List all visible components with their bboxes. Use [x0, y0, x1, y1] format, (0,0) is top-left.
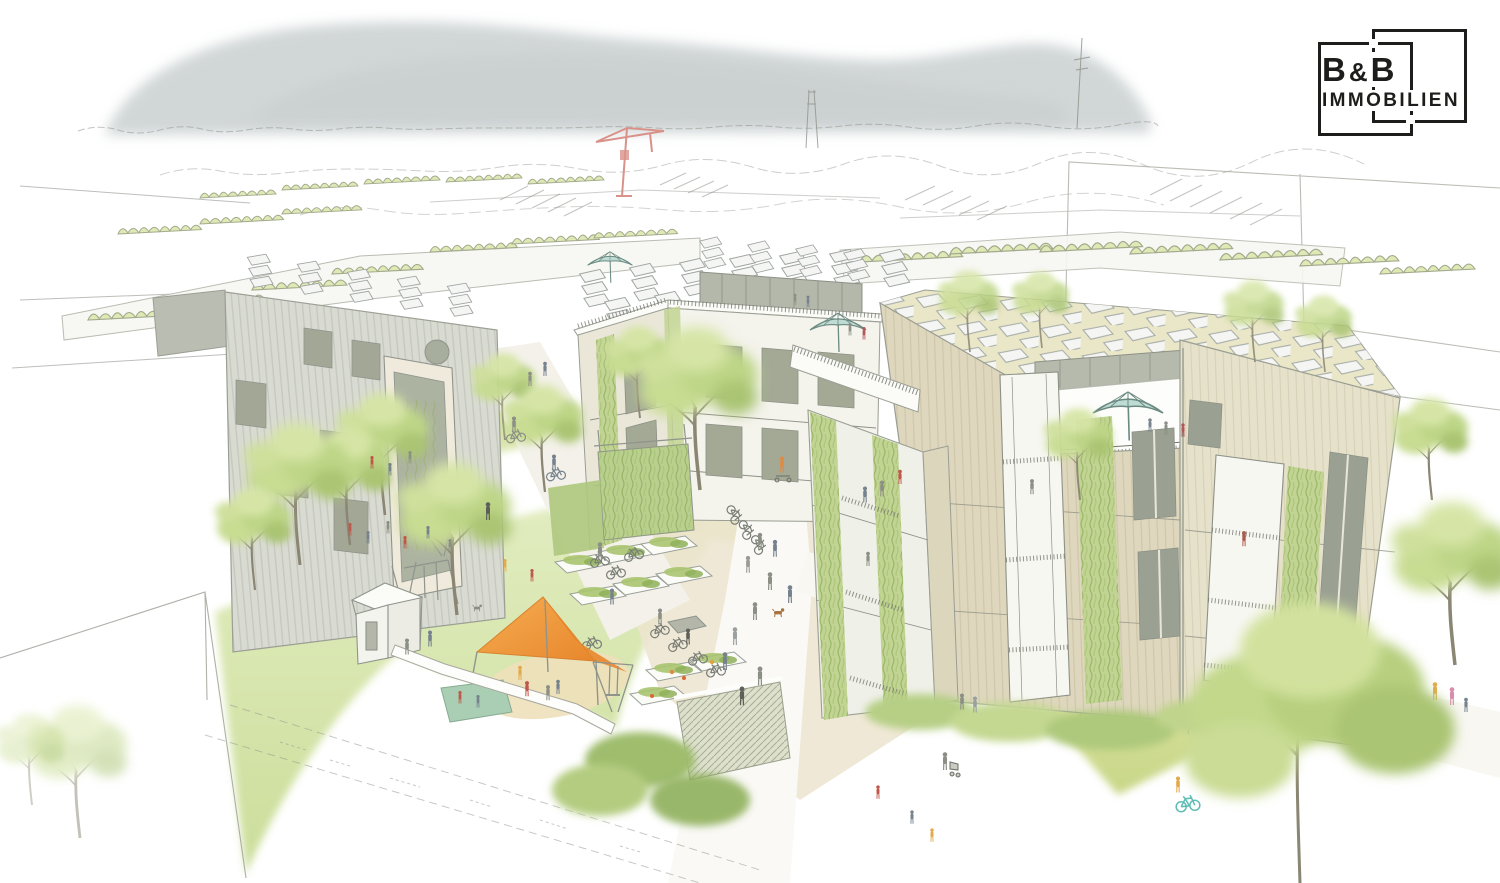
construction-crane [596, 128, 664, 196]
stair-column [1000, 372, 1070, 702]
logo-line-gap [1369, 39, 1378, 48]
teal-bicycle [1175, 794, 1200, 812]
brand-logo: B&B IMMOBILIEN [1316, 28, 1476, 146]
vineyard-hatching [500, 173, 1282, 225]
illustration [0, 0, 1500, 883]
logo-wordmark: B&B [1322, 52, 1400, 87]
logo-line-gap [1406, 115, 1415, 124]
mountain-backdrop [105, 22, 1151, 135]
rendering-canvas: Hand-drawn watercolor architectural visu… [0, 0, 1500, 883]
balcony-wing [808, 410, 958, 720]
porthole-window [425, 340, 449, 364]
logo-subtitle: IMMOBILIEN [1322, 90, 1462, 111]
stroller-person [943, 752, 960, 777]
